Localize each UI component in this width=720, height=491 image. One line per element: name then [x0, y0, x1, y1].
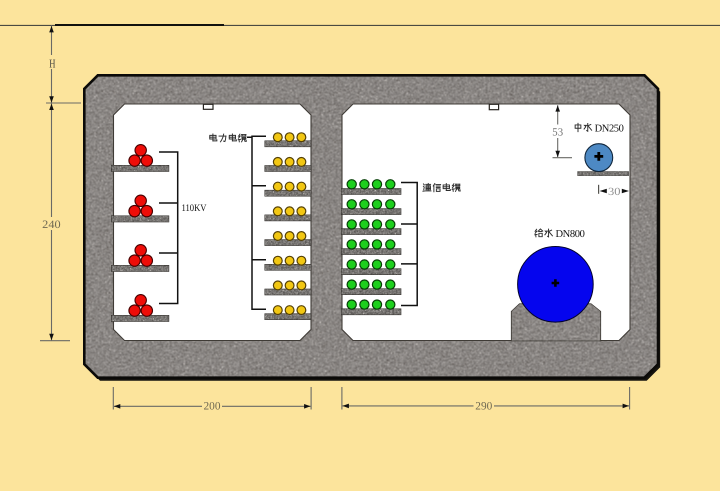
svg-text:200: 200 [204, 401, 221, 413]
svg-text:240: 240 [42, 219, 61, 231]
svg-text:DN800: DN800 [556, 229, 585, 240]
svg-text:110KV: 110KV [182, 203, 208, 214]
svg-text:290: 290 [475, 400, 492, 412]
svg-text:53: 53 [552, 127, 563, 139]
svg-text:H: H [49, 57, 55, 71]
svg-text:30: 30 [608, 186, 621, 198]
svg-text:DN250: DN250 [595, 124, 624, 135]
